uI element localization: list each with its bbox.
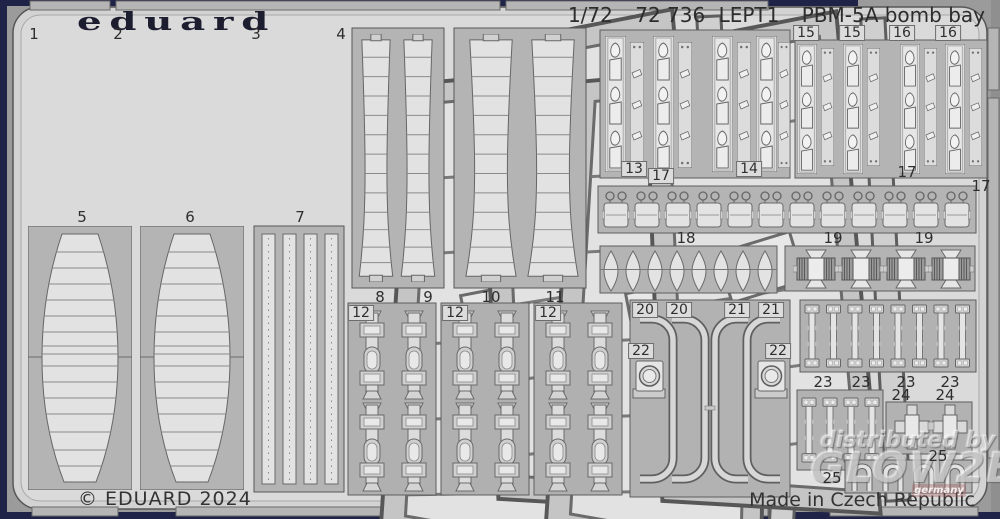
part-number-label: 21 — [758, 302, 784, 318]
pe-fret-scan: eduard 1/72 72 736 LEPT1 PBM-5A bomb bay… — [0, 0, 1000, 519]
part-number-label: 9 — [423, 290, 433, 305]
part-group-racks-12 — [348, 303, 622, 495]
header-product-info: 1/72 72 736 LEPT1 PBM-5A bomb bay — [568, 3, 985, 27]
pe-part — [140, 226, 244, 490]
pe-part — [28, 226, 132, 490]
part-number-label: 8 — [375, 290, 385, 305]
part-number-label: 6 — [185, 210, 195, 225]
part-number-label: 24 — [891, 388, 910, 403]
part-number-label: 3 — [251, 27, 261, 42]
part-number-label: 16 — [935, 25, 961, 41]
part-number-label: 20 — [632, 302, 658, 318]
part-number-label: 19 — [823, 231, 842, 246]
part-group-strips-7 — [254, 226, 344, 492]
scale-label: 1/72 — [568, 3, 613, 27]
part-number-label: 25 — [928, 449, 947, 464]
catalog-number: 72 736 — [635, 3, 705, 27]
watermark-germany-tag: germany — [912, 484, 966, 497]
part-group-23 — [800, 300, 976, 372]
part-number-label: 24 — [935, 388, 954, 403]
part-group-strips-13-14 — [600, 30, 790, 178]
part-number-label: 7 — [295, 210, 305, 225]
part-number-label: 23 — [813, 375, 832, 390]
part-number-label: 22 — [765, 343, 791, 359]
part-number-label: 12 — [348, 305, 374, 321]
part-number-label: 20 — [666, 302, 692, 318]
part-22-right — [755, 361, 787, 398]
sheet-code: LEPT1 — [719, 3, 780, 27]
part-group-17 — [598, 186, 976, 233]
part-number-label: 15 — [793, 25, 819, 41]
part-number-label: 15 — [839, 25, 865, 41]
part-group-19 — [785, 246, 975, 291]
part-number-label: 1 — [29, 27, 39, 42]
product-title: PBM-5A bomb bay — [802, 3, 985, 27]
part-group-rails-20-21 — [630, 300, 790, 497]
part-number-label: 14 — [736, 161, 762, 177]
part-number-label: 21 — [724, 302, 750, 318]
part-number-label: 10 — [481, 290, 500, 305]
part-number-label: 12 — [442, 305, 468, 321]
part-number-label: 16 — [889, 25, 915, 41]
part-number-label: 18 — [676, 231, 695, 246]
part-number-label: 12 — [535, 305, 561, 321]
part-number-label: 17 — [648, 168, 674, 184]
part-number-label: 17 — [897, 165, 916, 180]
part-number-label: 23 — [851, 375, 870, 390]
part-number-label: 5 — [77, 210, 87, 225]
part-group-strips-15-16 — [795, 40, 987, 178]
part-number-label: 11 — [545, 290, 564, 305]
copyright-text: © EDUARD 2024 — [78, 488, 252, 510]
part-number-label: 25 — [822, 471, 841, 486]
part-number-label: 4 — [336, 27, 346, 42]
part-number-label: 2 — [113, 27, 123, 42]
part-group-18 — [600, 246, 777, 293]
part-number-label: 22 — [628, 343, 654, 359]
part-number-label: 13 — [621, 161, 647, 177]
brand-logo: eduard — [77, 7, 276, 36]
part-group-panels-8-11 — [352, 28, 586, 288]
part-number-label: 19 — [914, 231, 933, 246]
part-22-left — [633, 361, 665, 398]
part-number-label: 17 — [971, 179, 990, 194]
